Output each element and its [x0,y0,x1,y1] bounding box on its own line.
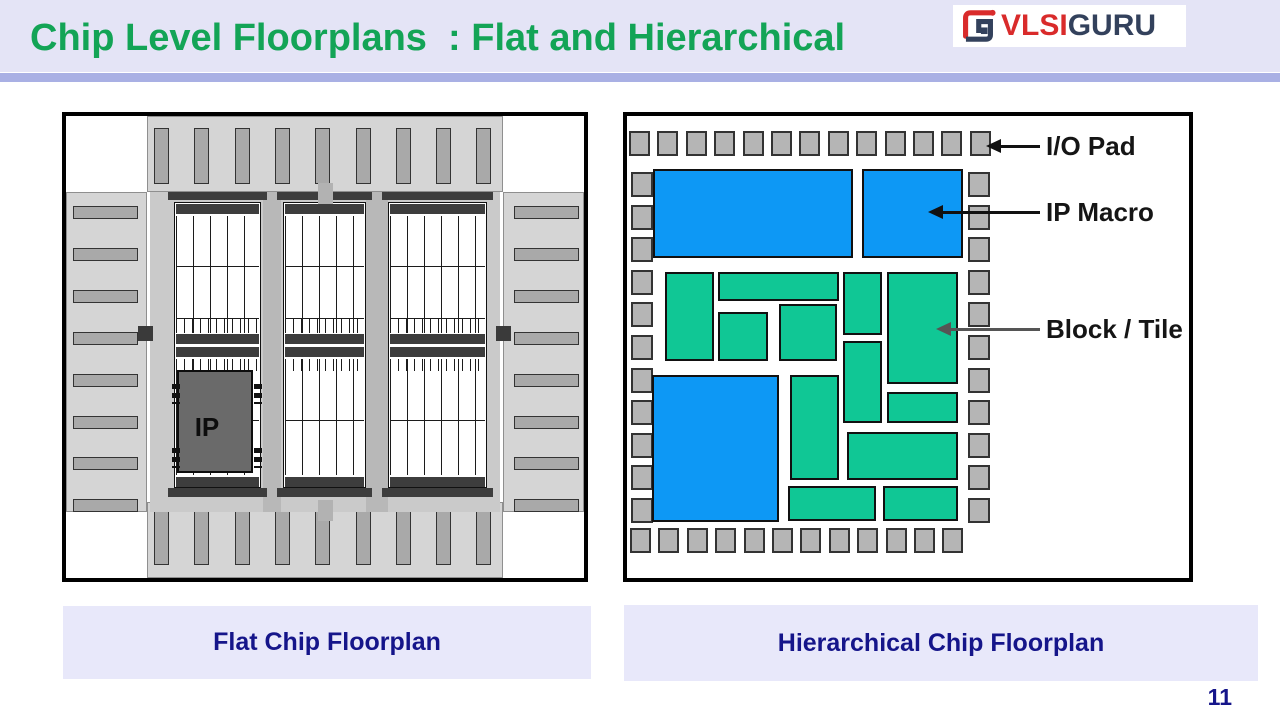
io-pad [968,368,990,393]
io-pad [631,302,653,327]
ip-pins [254,384,262,404]
vlsiguru-logo: VLSIGURU [953,5,1186,47]
hier-caption: Hierarchical Chip Floorplan [778,629,1104,658]
cell-ticks [390,359,485,371]
cell-ticks [285,318,364,333]
io-pad [968,172,990,197]
header-divider-bar [0,73,1280,82]
io-pad [73,416,138,429]
logo-text-vlsi: VLSI [1001,9,1068,43]
io-pad [514,416,579,429]
std-cell-rows [176,216,259,333]
block-tile [665,272,714,361]
hier-caption-box: Hierarchical Chip Floorplan [624,605,1258,681]
ip-pins [254,448,262,468]
block-tile-arrow-line [949,328,1040,331]
io-pad [743,131,764,156]
io-pad [73,290,138,303]
power-strap [390,347,485,357]
io-pad [630,528,651,553]
io-pad [194,509,209,565]
io-pad [73,457,138,470]
io-pad [275,128,290,184]
std-cell-column [388,202,487,488]
io-pad [968,270,990,295]
flat-core-area: IP [150,192,500,512]
hierarchical-chip-floorplan-diagram [623,112,1193,582]
io-pad [771,131,792,156]
io-pad [942,528,963,553]
block-tile [843,341,882,423]
io-pad [687,528,708,553]
io-pad [194,128,209,184]
power-strap [176,347,259,357]
io-pad [73,206,138,219]
io-pad [235,509,250,565]
power-strap [285,334,364,344]
io-pad [514,374,579,387]
routing-channel [366,192,388,512]
cell-ticks [285,359,364,371]
io-pad [631,205,653,230]
power-strap [285,347,364,357]
flat-top-pad-strip [147,116,503,192]
ip-label: IP [195,412,220,443]
flat-left-pad-strip [66,192,147,512]
io-pad [315,128,330,184]
io-pad [275,509,290,565]
io-pad [913,131,934,156]
io-pad [828,131,849,156]
io-pad-arrow-line [999,145,1040,148]
ip-macro [652,375,779,522]
io-pad [631,237,653,262]
power-strap [285,477,364,487]
io-pad [968,237,990,262]
io-pad [657,131,678,156]
io-pad [968,335,990,360]
block-tile [779,304,837,361]
power-ring-bar [168,192,267,200]
io-pad [514,290,579,303]
std-cell-rows [390,359,485,475]
io-pad [631,498,653,523]
io-pad [356,509,371,565]
io-pad [73,332,138,345]
io-pad [514,457,579,470]
power-strap [285,204,364,214]
block-tile [788,486,876,521]
std-cell-rows [390,216,485,333]
block-tile-arrow-head [936,322,951,336]
block-tile [887,392,958,423]
io-pad [968,302,990,327]
io-pad [514,248,579,261]
row-boundary [390,420,485,421]
io-pad [476,509,491,565]
io-pad [436,509,451,565]
io-pad [715,528,736,553]
io-pad [631,465,653,490]
io-pad [73,374,138,387]
std-cell-rows [285,216,364,333]
block-tile [718,312,768,361]
io-pad [436,128,451,184]
ip-pins [172,384,180,404]
io-pad [886,528,907,553]
logo-text-guru: GURU [1068,9,1156,43]
io-pad [631,335,653,360]
block-tile [883,486,958,521]
io-pad [800,528,821,553]
flat-caption: Flat Chip Floorplan [213,628,441,657]
power-strap [390,334,485,344]
io-pad [631,172,653,197]
ip-macro-arrow-head [928,205,943,219]
io-pad [396,128,411,184]
power-strap [176,477,259,487]
io-pad [154,128,169,184]
io-pad [631,270,653,295]
row-boundary [390,266,485,267]
block-tile-label: Block / Tile [1046,314,1183,345]
flat-chip-floorplan-diagram: IP [62,112,588,582]
io-pad [73,248,138,261]
ip-macro-arrow-line [941,211,1040,214]
vlsiguru-chip-icon [959,7,997,45]
io-pad-arrow-head [986,139,1001,153]
io-pad [914,528,935,553]
block-tile [790,375,839,480]
io-pad [631,368,653,393]
ip-macro [653,169,853,258]
block-tile [718,272,839,301]
io-pad [968,400,990,425]
io-pad [629,131,650,156]
ip-pins [172,448,180,468]
io-pad [744,528,765,553]
io-pad [514,332,579,345]
io-pad [772,528,793,553]
power-ring-bar [168,488,267,497]
routing-channel [263,192,281,512]
power-ring-bar [277,488,372,497]
std-cell-column [283,202,366,488]
io-pad [658,528,679,553]
io-pad [476,128,491,184]
io-pad [829,528,850,553]
core-io-connector [138,326,153,341]
io-pad [857,528,878,553]
io-pad [514,206,579,219]
io-pad [968,465,990,490]
power-strap [176,334,259,344]
io-pad [799,131,820,156]
io-pad [73,499,138,512]
io-pad-label: I/O Pad [1046,131,1136,162]
io-pad [154,509,169,565]
page-number: 11 [1160,684,1232,711]
io-pad [686,131,707,156]
io-pad [941,131,962,156]
io-pad [356,128,371,184]
core-io-connector [496,326,511,341]
row-boundary [285,266,364,267]
io-pad [235,128,250,184]
io-pad [885,131,906,156]
ip-hard-macro: IP [177,370,253,473]
io-pad [631,400,653,425]
io-pad [514,499,579,512]
power-ring-bar [382,192,493,200]
io-pad [714,131,735,156]
flat-right-pad-strip [503,192,584,512]
ip-macro-label: IP Macro [1046,197,1154,228]
cell-ticks [390,318,485,333]
io-pad [631,433,653,458]
std-cell-rows [285,359,364,475]
io-pad [856,131,877,156]
page-title: Chip Level Floorplans : Flat and Hierarc… [30,0,845,72]
slide-header: Chip Level Floorplans : Flat and Hierarc… [0,0,1280,72]
io-pad [396,509,411,565]
io-pad [968,498,990,523]
io-pad [968,205,990,230]
power-strap [390,477,485,487]
power-strap [390,204,485,214]
row-boundary [285,420,364,421]
block-tile [847,432,958,480]
core-io-tab [318,183,333,204]
core-io-tab [318,500,333,521]
row-boundary [176,266,259,267]
cell-ticks [176,318,259,333]
flat-caption-box: Flat Chip Floorplan [63,606,591,679]
block-tile [843,272,882,335]
io-pad [968,433,990,458]
power-strap [176,204,259,214]
power-ring-bar [382,488,493,497]
